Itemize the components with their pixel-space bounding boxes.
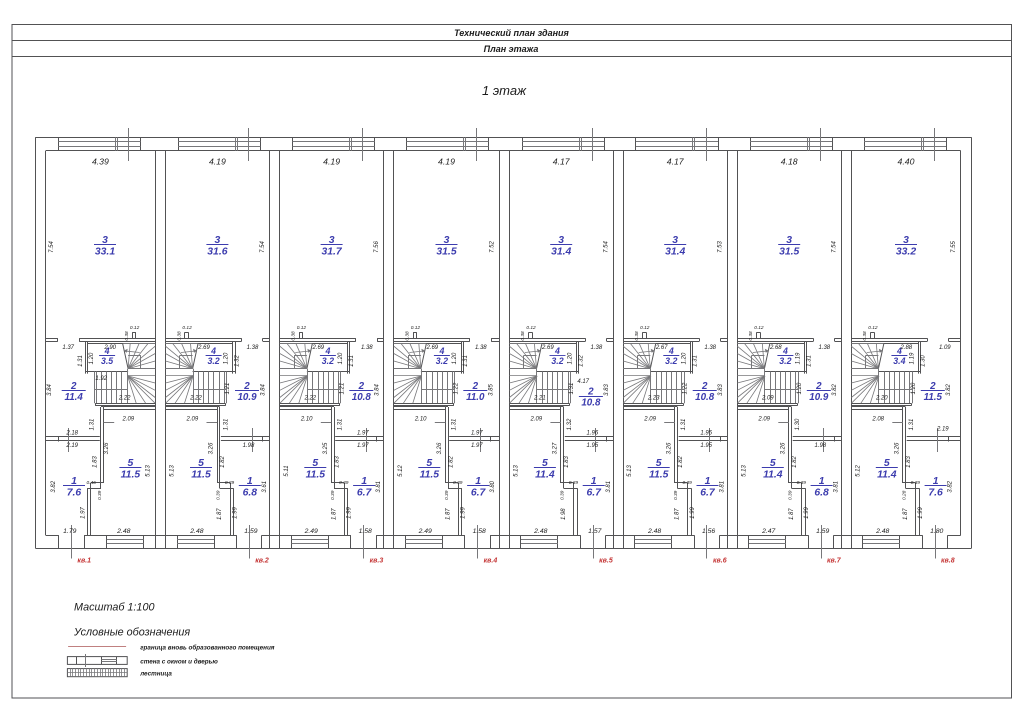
svg-text:11.5: 11.5 <box>306 469 326 480</box>
svg-text:2.69: 2.69 <box>541 345 554 351</box>
svg-text:2.48: 2.48 <box>533 528 547 535</box>
svg-text:1.96: 1.96 <box>587 431 599 437</box>
svg-text:1.30: 1.30 <box>795 418 801 430</box>
svg-text:6.8: 6.8 <box>243 487 258 498</box>
svg-text:4: 4 <box>438 346 444 356</box>
svg-text:1.38: 1.38 <box>704 345 716 351</box>
svg-text:0.28: 0.28 <box>901 490 907 500</box>
svg-text:5.13: 5.13 <box>741 465 747 477</box>
svg-text:4.39: 4.39 <box>92 156 109 166</box>
svg-text:0.46: 0.46 <box>87 480 97 486</box>
svg-text:1.31: 1.31 <box>338 419 344 431</box>
svg-text:3.5: 3.5 <box>101 356 113 366</box>
svg-text:1.31: 1.31 <box>463 355 469 367</box>
svg-text:2.21: 2.21 <box>533 396 546 402</box>
svg-text:7.54: 7.54 <box>604 241 610 253</box>
svg-text:кв.2: кв.2 <box>255 557 269 564</box>
svg-text:3.82: 3.82 <box>948 480 954 492</box>
svg-text:11.4: 11.4 <box>763 469 783 480</box>
svg-text:11.0: 11.0 <box>466 392 485 403</box>
svg-text:2.68: 2.68 <box>769 345 782 351</box>
svg-text:0.12: 0.12 <box>297 325 307 331</box>
svg-text:1.95: 1.95 <box>700 443 712 449</box>
svg-text:3.80: 3.80 <box>490 480 496 492</box>
svg-text:граница вновь образованного по: граница вновь образованного помещения <box>140 643 275 651</box>
svg-text:1.20: 1.20 <box>681 352 687 364</box>
svg-text:1.38: 1.38 <box>361 345 373 351</box>
svg-text:3.85: 3.85 <box>489 384 495 396</box>
svg-text:31.4: 31.4 <box>665 246 685 257</box>
svg-text:1.82: 1.82 <box>220 456 226 468</box>
svg-text:1.37: 1.37 <box>62 345 74 351</box>
svg-text:2.09: 2.09 <box>757 416 770 422</box>
svg-text:2.49: 2.49 <box>418 528 432 535</box>
svg-text:1.97: 1.97 <box>471 443 483 449</box>
svg-text:3.4: 3.4 <box>893 356 905 366</box>
svg-text:0.38: 0.38 <box>634 331 640 341</box>
svg-text:1.38: 1.38 <box>475 345 487 351</box>
svg-text:2.69: 2.69 <box>311 345 324 351</box>
svg-text:1.97: 1.97 <box>357 431 369 437</box>
svg-text:3.26: 3.26 <box>781 442 787 454</box>
svg-text:0.39: 0.39 <box>339 480 349 486</box>
svg-text:11.5: 11.5 <box>649 469 669 480</box>
svg-text:2.48: 2.48 <box>647 528 661 535</box>
svg-text:7.6: 7.6 <box>67 487 82 498</box>
svg-text:3.82: 3.82 <box>51 480 57 492</box>
svg-text:10.8: 10.8 <box>352 392 372 403</box>
svg-text:1.98: 1.98 <box>561 508 567 520</box>
svg-text:1.99: 1.99 <box>461 507 467 519</box>
svg-text:7.56: 7.56 <box>374 241 380 253</box>
svg-text:7.54: 7.54 <box>832 241 838 253</box>
svg-text:стена с окном и дверью: стена с окном и дверью <box>140 657 218 665</box>
svg-text:0.38: 0.38 <box>862 331 868 341</box>
svg-text:1.57: 1.57 <box>588 528 601 535</box>
svg-text:1.31: 1.31 <box>807 355 813 367</box>
svg-text:31.5: 31.5 <box>779 246 799 257</box>
svg-text:1.09: 1.09 <box>939 345 951 351</box>
svg-text:1.83: 1.83 <box>93 456 99 468</box>
svg-text:5.13: 5.13 <box>146 465 152 477</box>
svg-text:10.8: 10.8 <box>581 397 601 408</box>
svg-text:11.5: 11.5 <box>121 469 141 480</box>
svg-text:6.7: 6.7 <box>357 487 373 498</box>
svg-text:1.56: 1.56 <box>702 528 715 535</box>
svg-text:1.99: 1.99 <box>804 507 810 519</box>
svg-text:1.32: 1.32 <box>579 355 585 367</box>
svg-text:0.38: 0.38 <box>124 331 130 341</box>
svg-text:1.31: 1.31 <box>692 355 698 367</box>
svg-text:3.83: 3.83 <box>718 384 724 396</box>
svg-text:1.21: 1.21 <box>225 383 231 395</box>
svg-text:1.31: 1.31 <box>909 419 915 431</box>
svg-text:0.12: 0.12 <box>182 325 192 331</box>
svg-text:1.87: 1.87 <box>675 508 681 520</box>
svg-text:0.12: 0.12 <box>754 325 764 331</box>
svg-text:7.55: 7.55 <box>951 241 957 253</box>
svg-text:1.99: 1.99 <box>232 507 238 519</box>
svg-text:7.6: 7.6 <box>928 487 943 498</box>
svg-text:1.32: 1.32 <box>235 355 241 367</box>
svg-text:2.22: 2.22 <box>303 396 316 402</box>
svg-text:2.67: 2.67 <box>655 345 668 351</box>
svg-text:5.13: 5.13 <box>170 465 176 477</box>
svg-text:1.38: 1.38 <box>818 345 830 351</box>
svg-text:4.19: 4.19 <box>323 156 340 166</box>
svg-text:1.83: 1.83 <box>906 456 912 468</box>
svg-text:3.26: 3.26 <box>666 442 672 454</box>
svg-text:лестница: лестница <box>139 670 172 677</box>
svg-text:0.12: 0.12 <box>526 325 536 331</box>
svg-text:1.19: 1.19 <box>796 352 802 364</box>
svg-text:1.99: 1.99 <box>918 507 924 519</box>
svg-text:2.19: 2.19 <box>936 427 949 433</box>
svg-text:33.1: 33.1 <box>95 246 115 257</box>
svg-text:1.87: 1.87 <box>789 508 795 520</box>
svg-text:1.38: 1.38 <box>247 345 259 351</box>
svg-text:2.09: 2.09 <box>529 416 542 422</box>
svg-text:2.49: 2.49 <box>304 528 318 535</box>
svg-text:1.20: 1.20 <box>911 382 917 394</box>
svg-text:0.39: 0.39 <box>225 480 235 486</box>
svg-text:5.13: 5.13 <box>513 465 519 477</box>
svg-text:3.26: 3.26 <box>209 442 215 454</box>
svg-text:2.69: 2.69 <box>425 345 438 351</box>
svg-text:3.2: 3.2 <box>665 356 677 366</box>
svg-text:4.17: 4.17 <box>667 156 685 166</box>
svg-text:1.58: 1.58 <box>359 528 372 535</box>
svg-text:0.39: 0.39 <box>683 480 693 486</box>
svg-text:1.22: 1.22 <box>453 382 459 394</box>
svg-text:1.97: 1.97 <box>357 443 369 449</box>
svg-text:5.12: 5.12 <box>398 465 404 477</box>
svg-text:0.39: 0.39 <box>330 490 336 500</box>
svg-text:11.4: 11.4 <box>65 392 84 403</box>
svg-text:0.39: 0.39 <box>673 490 679 500</box>
svg-text:кв.8: кв.8 <box>941 557 955 564</box>
svg-text:2.08: 2.08 <box>871 416 884 422</box>
svg-text:0.38: 0.38 <box>291 331 297 341</box>
svg-text:6.7: 6.7 <box>586 487 602 498</box>
svg-text:1.83: 1.83 <box>564 456 570 468</box>
svg-text:3.26: 3.26 <box>437 442 443 454</box>
svg-text:1.20: 1.20 <box>797 382 803 394</box>
svg-text:0.12: 0.12 <box>640 325 650 331</box>
svg-text:3.2: 3.2 <box>551 356 563 366</box>
svg-text:2.19: 2.19 <box>65 443 78 449</box>
svg-text:0.39: 0.39 <box>787 490 793 500</box>
svg-text:0.39: 0.39 <box>569 480 579 486</box>
svg-text:Технический план здания: Технический план здания <box>454 28 569 38</box>
svg-text:3.82: 3.82 <box>946 384 952 396</box>
svg-text:7.53: 7.53 <box>718 241 724 253</box>
svg-text:1.59: 1.59 <box>244 528 257 535</box>
svg-text:4: 4 <box>554 346 560 356</box>
svg-text:кв.7: кв.7 <box>827 557 842 564</box>
svg-text:1.82: 1.82 <box>792 456 798 468</box>
svg-text:2.88: 2.88 <box>899 345 912 351</box>
svg-text:4: 4 <box>324 346 330 356</box>
svg-text:План этажа: План этажа <box>484 44 539 54</box>
svg-text:кв.1: кв.1 <box>77 557 91 564</box>
svg-text:1.19: 1.19 <box>910 352 916 364</box>
svg-text:10.8: 10.8 <box>695 392 715 403</box>
svg-text:4.18: 4.18 <box>781 156 798 166</box>
svg-text:2.09: 2.09 <box>643 416 656 422</box>
svg-text:3.2: 3.2 <box>207 356 219 366</box>
svg-text:1.87: 1.87 <box>445 508 451 520</box>
svg-text:4.17: 4.17 <box>553 156 571 166</box>
svg-text:0.12: 0.12 <box>130 325 140 331</box>
svg-text:1.87: 1.87 <box>903 508 909 520</box>
svg-text:3.26: 3.26 <box>104 442 110 454</box>
svg-text:3.2: 3.2 <box>436 356 448 366</box>
svg-text:1 этаж: 1 этаж <box>482 83 527 98</box>
svg-text:1.98: 1.98 <box>814 443 826 449</box>
svg-text:3.2: 3.2 <box>322 356 334 366</box>
svg-text:1.82: 1.82 <box>678 456 684 468</box>
svg-text:2.48: 2.48 <box>116 528 130 535</box>
svg-text:6.8: 6.8 <box>814 487 829 498</box>
svg-text:1.99: 1.99 <box>347 507 353 519</box>
svg-text:2.69: 2.69 <box>197 345 210 351</box>
svg-text:0.39: 0.39 <box>797 480 807 486</box>
svg-text:3.81: 3.81 <box>720 481 726 493</box>
svg-text:0.12: 0.12 <box>868 325 878 331</box>
svg-text:5.13: 5.13 <box>627 465 633 477</box>
svg-text:1.38: 1.38 <box>591 345 603 351</box>
svg-text:1.99: 1.99 <box>690 507 696 519</box>
svg-text:4.19: 4.19 <box>438 156 455 166</box>
svg-text:1.20: 1.20 <box>89 352 95 364</box>
svg-text:31.6: 31.6 <box>207 246 227 257</box>
svg-text:11.5: 11.5 <box>420 469 440 480</box>
svg-text:1.31: 1.31 <box>569 383 575 395</box>
svg-text:Масштаб 1:100: Масштаб 1:100 <box>74 602 154 614</box>
svg-text:0.38: 0.38 <box>520 331 526 341</box>
svg-text:3.26: 3.26 <box>895 442 901 454</box>
svg-text:7.52: 7.52 <box>490 241 496 253</box>
svg-text:2.22: 2.22 <box>189 396 202 402</box>
svg-text:10.9: 10.9 <box>809 392 829 403</box>
svg-text:0.39: 0.39 <box>911 480 921 486</box>
svg-text:3.61: 3.61 <box>262 481 268 493</box>
svg-text:1.31: 1.31 <box>223 419 229 431</box>
svg-text:3.83: 3.83 <box>604 384 610 396</box>
svg-text:1.30: 1.30 <box>921 355 927 367</box>
svg-text:2.22: 2.22 <box>118 396 131 402</box>
svg-text:11.5: 11.5 <box>191 469 211 480</box>
svg-text:1.95: 1.95 <box>700 431 712 437</box>
svg-text:1.58: 1.58 <box>473 528 486 535</box>
svg-text:2.18: 2.18 <box>65 431 78 437</box>
svg-text:3.84: 3.84 <box>375 384 381 396</box>
svg-text:1.97: 1.97 <box>471 431 483 437</box>
svg-text:3.84: 3.84 <box>260 384 266 396</box>
svg-text:31.5: 31.5 <box>436 246 456 257</box>
svg-text:4.19: 4.19 <box>209 156 226 166</box>
svg-text:4: 4 <box>210 346 216 356</box>
svg-text:1.20: 1.20 <box>224 352 230 364</box>
svg-text:3.2: 3.2 <box>779 356 791 366</box>
svg-text:1.20: 1.20 <box>338 352 344 364</box>
svg-text:2.48: 2.48 <box>875 528 889 535</box>
svg-text:3.81: 3.81 <box>606 481 612 493</box>
svg-text:11.5: 11.5 <box>924 392 943 403</box>
svg-text:1.21: 1.21 <box>339 383 345 395</box>
svg-text:2.09: 2.09 <box>121 416 134 422</box>
svg-text:7.54: 7.54 <box>260 241 266 253</box>
svg-text:1.22: 1.22 <box>683 382 689 394</box>
svg-text:1.87: 1.87 <box>331 508 337 520</box>
svg-text:2.48: 2.48 <box>189 528 203 535</box>
svg-text:1.92: 1.92 <box>95 376 107 382</box>
svg-text:0.38: 0.38 <box>176 331 182 341</box>
svg-text:2.09: 2.09 <box>186 416 199 422</box>
svg-text:1.32: 1.32 <box>567 418 573 430</box>
svg-text:4: 4 <box>782 346 788 356</box>
svg-text:2.10: 2.10 <box>414 416 427 422</box>
svg-text:1.80: 1.80 <box>930 528 943 535</box>
svg-text:0.39: 0.39 <box>559 490 565 500</box>
svg-text:1.98: 1.98 <box>243 443 255 449</box>
svg-text:1.31: 1.31 <box>349 355 355 367</box>
svg-text:3.84: 3.84 <box>47 384 53 396</box>
svg-text:3.81: 3.81 <box>376 481 382 493</box>
svg-text:1.31: 1.31 <box>89 419 95 431</box>
svg-text:2.09: 2.09 <box>761 396 774 402</box>
svg-text:кв.6: кв.6 <box>713 557 727 564</box>
svg-text:0.39: 0.39 <box>453 480 463 486</box>
svg-text:4: 4 <box>668 346 674 356</box>
svg-text:1.82: 1.82 <box>448 456 454 468</box>
svg-text:11.4: 11.4 <box>535 469 555 480</box>
svg-text:0.12: 0.12 <box>411 325 421 331</box>
svg-text:кв.3: кв.3 <box>370 557 384 564</box>
svg-text:1.87: 1.87 <box>217 508 223 520</box>
svg-text:1.59: 1.59 <box>816 528 829 535</box>
svg-text:1.20: 1.20 <box>452 352 458 364</box>
svg-text:0.39: 0.39 <box>444 490 450 500</box>
svg-text:3.25: 3.25 <box>323 442 329 454</box>
svg-text:2.10: 2.10 <box>300 416 313 422</box>
svg-text:0.39: 0.39 <box>97 490 103 500</box>
svg-text:7.54: 7.54 <box>49 241 55 253</box>
svg-text:11.4: 11.4 <box>877 469 897 480</box>
svg-text:0.38: 0.38 <box>405 331 411 341</box>
svg-text:2.47: 2.47 <box>761 528 775 535</box>
svg-text:0.39: 0.39 <box>216 490 222 500</box>
svg-text:1.31: 1.31 <box>681 419 687 431</box>
svg-text:4.40: 4.40 <box>898 156 915 166</box>
svg-text:3.82: 3.82 <box>832 384 838 396</box>
svg-text:1.31: 1.31 <box>452 419 458 431</box>
svg-text:5.12: 5.12 <box>855 465 861 477</box>
svg-text:1.97: 1.97 <box>80 507 86 519</box>
svg-text:3.27: 3.27 <box>553 442 559 454</box>
svg-text:1.83: 1.83 <box>334 456 340 468</box>
svg-text:4.17: 4.17 <box>577 379 589 385</box>
svg-text:кв.4: кв.4 <box>484 557 498 564</box>
svg-text:5.11: 5.11 <box>284 465 290 476</box>
svg-text:2.23: 2.23 <box>647 396 660 402</box>
svg-text:2.20: 2.20 <box>875 396 888 402</box>
svg-text:6.7: 6.7 <box>471 487 487 498</box>
svg-text:1.95: 1.95 <box>587 443 599 449</box>
svg-text:31.7: 31.7 <box>321 246 342 257</box>
svg-text:31.4: 31.4 <box>551 246 571 257</box>
svg-text:кв.5: кв.5 <box>599 557 613 564</box>
svg-text:Условные обозначения: Условные обозначения <box>73 627 190 639</box>
svg-text:33.2: 33.2 <box>896 246 916 257</box>
svg-text:0.38: 0.38 <box>748 331 754 341</box>
svg-text:3.81: 3.81 <box>834 481 840 493</box>
svg-text:2: 2 <box>587 387 594 398</box>
svg-text:1.31: 1.31 <box>78 355 84 367</box>
svg-text:6.7: 6.7 <box>700 487 716 498</box>
svg-text:2.90: 2.90 <box>103 345 116 351</box>
svg-text:1.20: 1.20 <box>568 352 574 364</box>
svg-text:1.79: 1.79 <box>63 528 76 535</box>
svg-text:10.9: 10.9 <box>237 392 257 403</box>
